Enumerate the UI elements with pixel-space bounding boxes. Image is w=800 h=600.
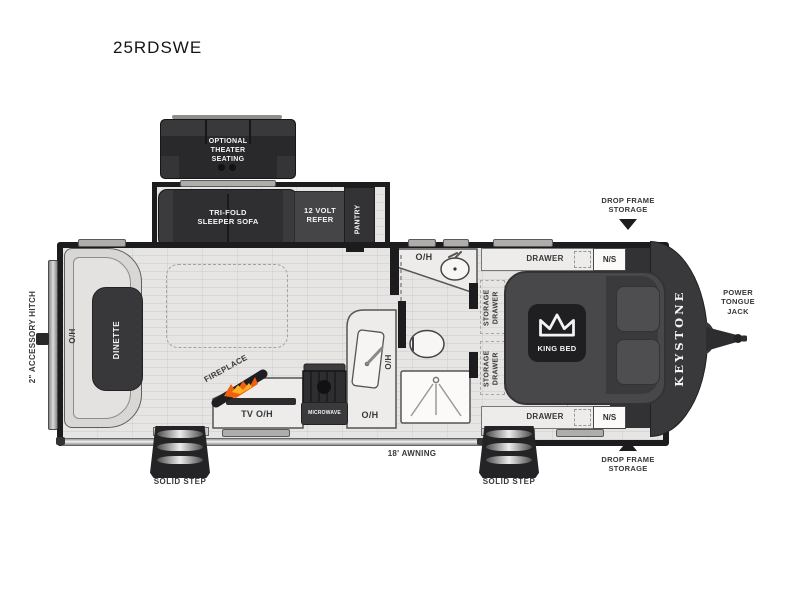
microwave: MICROWAVE [301, 402, 348, 425]
power-tongue-jack-label: POWER TONGUE JACK [712, 288, 764, 316]
sofa-arm [159, 190, 173, 249]
pantry-corner-wall [346, 242, 364, 252]
kitchen-overhead-label: O/H [355, 410, 385, 421]
seat-arm [161, 156, 179, 178]
bath-bedroom-wall [469, 352, 478, 378]
pantry: PANTRY [344, 187, 375, 249]
drop-frame-arrow-down-icon [619, 219, 637, 230]
brand-label: KEYSTONE [672, 263, 686, 413]
tri-fold-sleeper-sofa: TRI-FOLD SLEEPER SOFA [158, 189, 298, 250]
bath-bedroom-wall [469, 283, 478, 309]
rear-street-window [78, 239, 126, 247]
ns-bottom-label: N/S [603, 413, 616, 422]
bath-window [408, 239, 436, 247]
king-bed-label: KING BED [528, 344, 586, 353]
nightstand-top: N/S [593, 248, 626, 271]
cupholder-icon [218, 164, 225, 171]
crown-icon [535, 311, 579, 339]
theater-seat-back [161, 120, 295, 136]
dinette-overhead-label: O/H [68, 321, 78, 351]
slideout-window [180, 180, 276, 187]
refrigerator: 12 VOLT REFER [294, 191, 346, 244]
theater-top-trim [172, 115, 282, 119]
step-tread [486, 456, 532, 464]
theater-seating-label: OPTIONAL THEATER SEATING [194, 138, 262, 164]
storage-drawer-label-2: STORAGE DRAWER [483, 343, 501, 395]
sink-overhead-label: O/H [384, 347, 394, 377]
camp-window [222, 429, 290, 437]
pantry-label: PANTRY [355, 189, 364, 249]
bedroom-window [493, 239, 553, 247]
pillow-icon [616, 339, 660, 385]
tv-overhead-label: TV O/H [227, 409, 287, 420]
solid-step-left [150, 426, 210, 478]
king-bed-badge: KING BED [528, 304, 586, 362]
awning-end-cap [56, 437, 65, 445]
solid-step-right [479, 426, 539, 478]
solid-step-left-label: SOLID STEP [145, 477, 215, 487]
theater-seating-option: OPTIONAL THEATER SEATING [160, 119, 296, 179]
refer-label: 12 VOLT REFER [298, 206, 342, 225]
bath-wall [390, 245, 399, 295]
step-tread [157, 443, 203, 451]
step-tread [157, 430, 203, 438]
cupholder-icon [229, 164, 236, 171]
bath-wall [398, 301, 406, 348]
nightstand-bottom: N/S [593, 406, 626, 429]
awning-rail [60, 438, 484, 446]
awning-label: 18' AWNING [382, 449, 442, 459]
drop-frame-storage-bottom-label: DROP FRAME STORAGE [595, 455, 661, 474]
dinette-table: DINETTE [92, 287, 143, 391]
drawer-top-label: DRAWER [505, 254, 585, 264]
king-bed: KING BED [504, 271, 666, 405]
rear-bumper [48, 260, 58, 430]
vanity-overhead-label: O/H [409, 252, 439, 263]
page-title: 25RDSWE [113, 38, 202, 58]
dinette-label: DINETTE [112, 300, 122, 380]
seat-arm [277, 156, 295, 178]
step-tread [486, 430, 532, 438]
accessory-hitch-label: 2" ACCESSORY HITCH [28, 272, 38, 402]
drop-frame-storage-top-label: DROP FRAME STORAGE [595, 196, 661, 215]
bedroom-camp-window [556, 429, 604, 437]
power-tongue-jack-icon [706, 327, 737, 351]
storage-drawer-label-1: STORAGE DRAWER [483, 282, 501, 334]
step-tread [157, 456, 203, 464]
bath-window-2 [443, 239, 469, 247]
pillow-icon [616, 286, 660, 332]
jack-foot [741, 336, 747, 342]
jack-tip [734, 334, 743, 343]
ns-top-label: N/S [603, 255, 616, 264]
floor-area-outline [166, 264, 288, 348]
drawer-bottom-label: DRAWER [505, 412, 585, 422]
floorplan-canvas: 25RDSWE OPTIONAL THEATER SEATING TRI-FOL… [0, 0, 800, 600]
microwave-label: MICROWAVE [302, 410, 347, 416]
sofa-label: TRI-FOLD SLEEPER SOFA [193, 208, 263, 227]
step-tread [486, 443, 532, 451]
solid-step-right-label: SOLID STEP [474, 477, 544, 487]
drop-frame-arrow-up-icon [619, 440, 637, 451]
